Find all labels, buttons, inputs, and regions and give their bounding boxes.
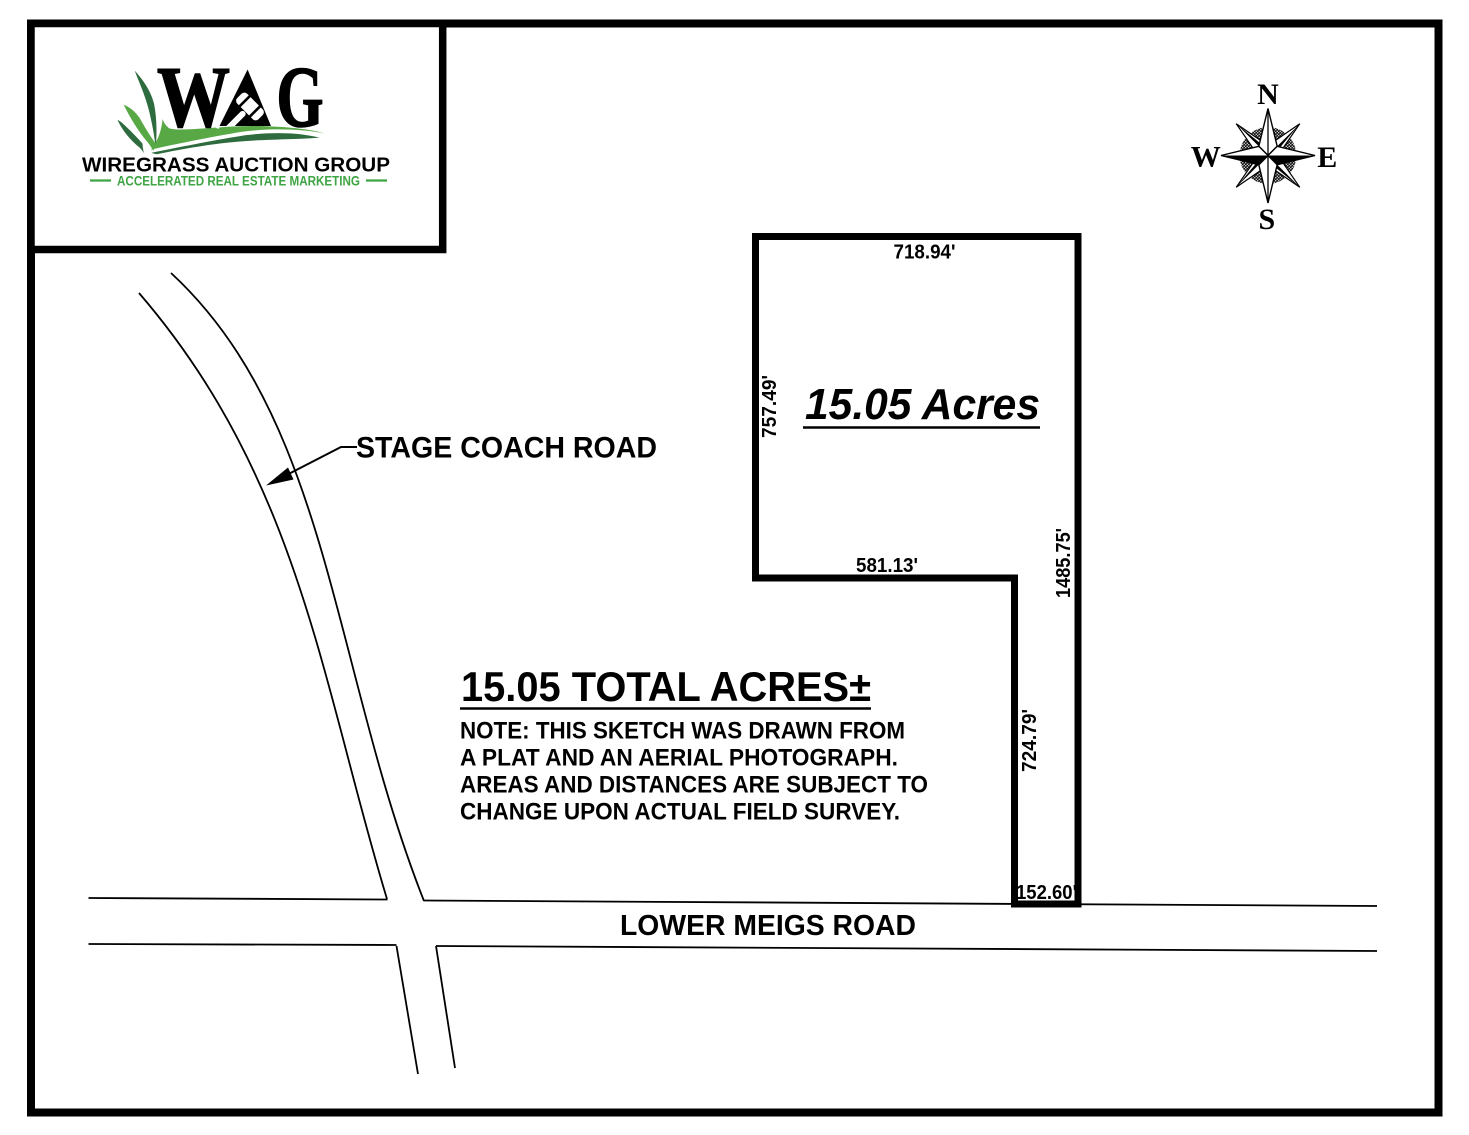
svg-text:LOWER MEIGS ROAD: LOWER MEIGS ROAD [620,910,916,942]
svg-text:G: G [277,48,324,145]
svg-text:S: S [1258,203,1275,236]
svg-text:NOTE: THIS SKETCH WAS DRAWN FR: NOTE: THIS SKETCH WAS DRAWN FROM [460,718,905,745]
svg-text:CHANGE UPON ACTUAL FIELD SURVE: CHANGE UPON ACTUAL FIELD SURVEY. [460,799,900,826]
svg-text:AREAS AND DISTANCES ARE SUBJEC: AREAS AND DISTANCES ARE SUBJECT TO [460,772,928,799]
svg-text:N: N [1257,78,1279,111]
svg-text:1485.75': 1485.75' [1053,528,1075,598]
svg-text:718.94': 718.94' [894,242,956,264]
svg-text:152.60': 152.60' [1016,882,1077,904]
svg-text:A PLAT AND AN AERIAL PHOTOGRAP: A PLAT AND AN AERIAL PHOTOGRAPH. [460,745,898,772]
svg-text:ACCELERATED REAL ESTATE MARKET: ACCELERATED REAL ESTATE MARKETING [117,174,360,190]
svg-text:E: E [1317,141,1337,174]
svg-text:757.49': 757.49' [759,375,781,438]
svg-text:W: W [1191,141,1221,174]
svg-text:STAGE COACH ROAD: STAGE COACH ROAD [356,432,657,465]
svg-text:724.79': 724.79' [1019,709,1041,772]
svg-text:15.05 TOTAL ACRES±: 15.05 TOTAL ACRES± [461,663,871,710]
svg-text:581.13': 581.13' [856,555,918,577]
svg-text:15.05 Acres: 15.05 Acres [805,380,1040,429]
svg-text:W: W [157,48,230,145]
